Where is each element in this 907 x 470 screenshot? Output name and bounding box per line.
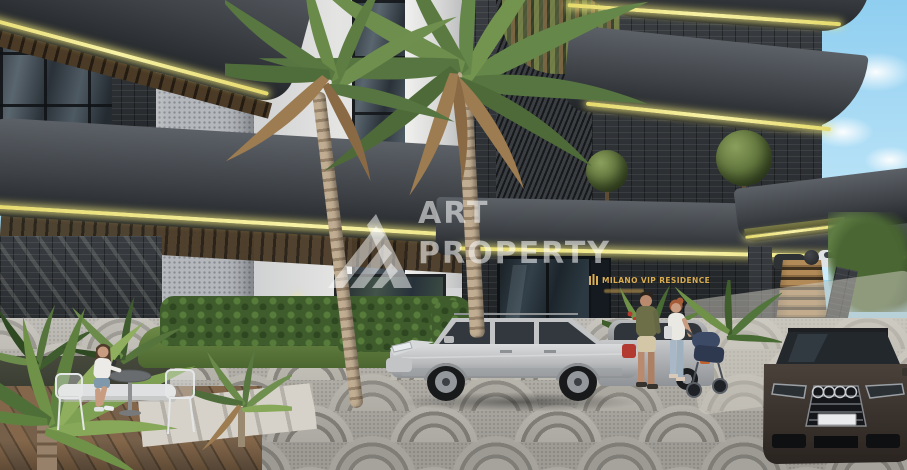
cafe-table-set [44, 334, 214, 438]
woman [664, 298, 693, 382]
audi-sedan [758, 328, 907, 470]
head [98, 347, 109, 358]
door-handle [544, 350, 556, 353]
mirror [902, 368, 907, 376]
topiary-ball-tree [716, 130, 772, 186]
shoe [94, 407, 104, 412]
jeans-leg [670, 340, 677, 374]
shorts [637, 336, 656, 352]
stroller-seat [693, 344, 725, 363]
shoe [104, 405, 115, 411]
watermark-line2: PROPERTY [418, 234, 611, 274]
head [640, 295, 652, 307]
mirror [444, 336, 454, 343]
leg [95, 388, 101, 407]
leg [638, 352, 645, 382]
architectural-render-scene: MILANO VIP RESIDENCE [0, 0, 907, 470]
door-handle [500, 350, 512, 353]
watermark: ART PROPERTY [326, 192, 626, 300]
license-plate [818, 414, 856, 425]
shoe [647, 384, 658, 389]
air-intake [866, 434, 900, 448]
shorts [94, 378, 110, 388]
shoe [676, 377, 685, 381]
pedestrian-couple-with-stroller [628, 290, 738, 412]
man [636, 292, 661, 389]
stroller-wheel [687, 383, 701, 397]
front-bumper [386, 358, 412, 372]
palm-trunk [238, 407, 245, 447]
baby-stroller [686, 330, 727, 397]
bag [664, 326, 672, 339]
stroller-wheel [713, 379, 727, 393]
air-intake [772, 434, 806, 448]
jeans-leg [677, 340, 684, 377]
mercedes-suv [382, 302, 652, 410]
watermark-line1: ART [418, 194, 611, 234]
shoe [636, 382, 647, 387]
air-intake [814, 436, 858, 448]
newel-lamp [804, 250, 819, 265]
phone [111, 359, 117, 366]
leg [648, 352, 655, 384]
wire-chair [166, 370, 194, 434]
head [671, 303, 681, 313]
art-property-triangle-logo-icon [326, 192, 414, 290]
